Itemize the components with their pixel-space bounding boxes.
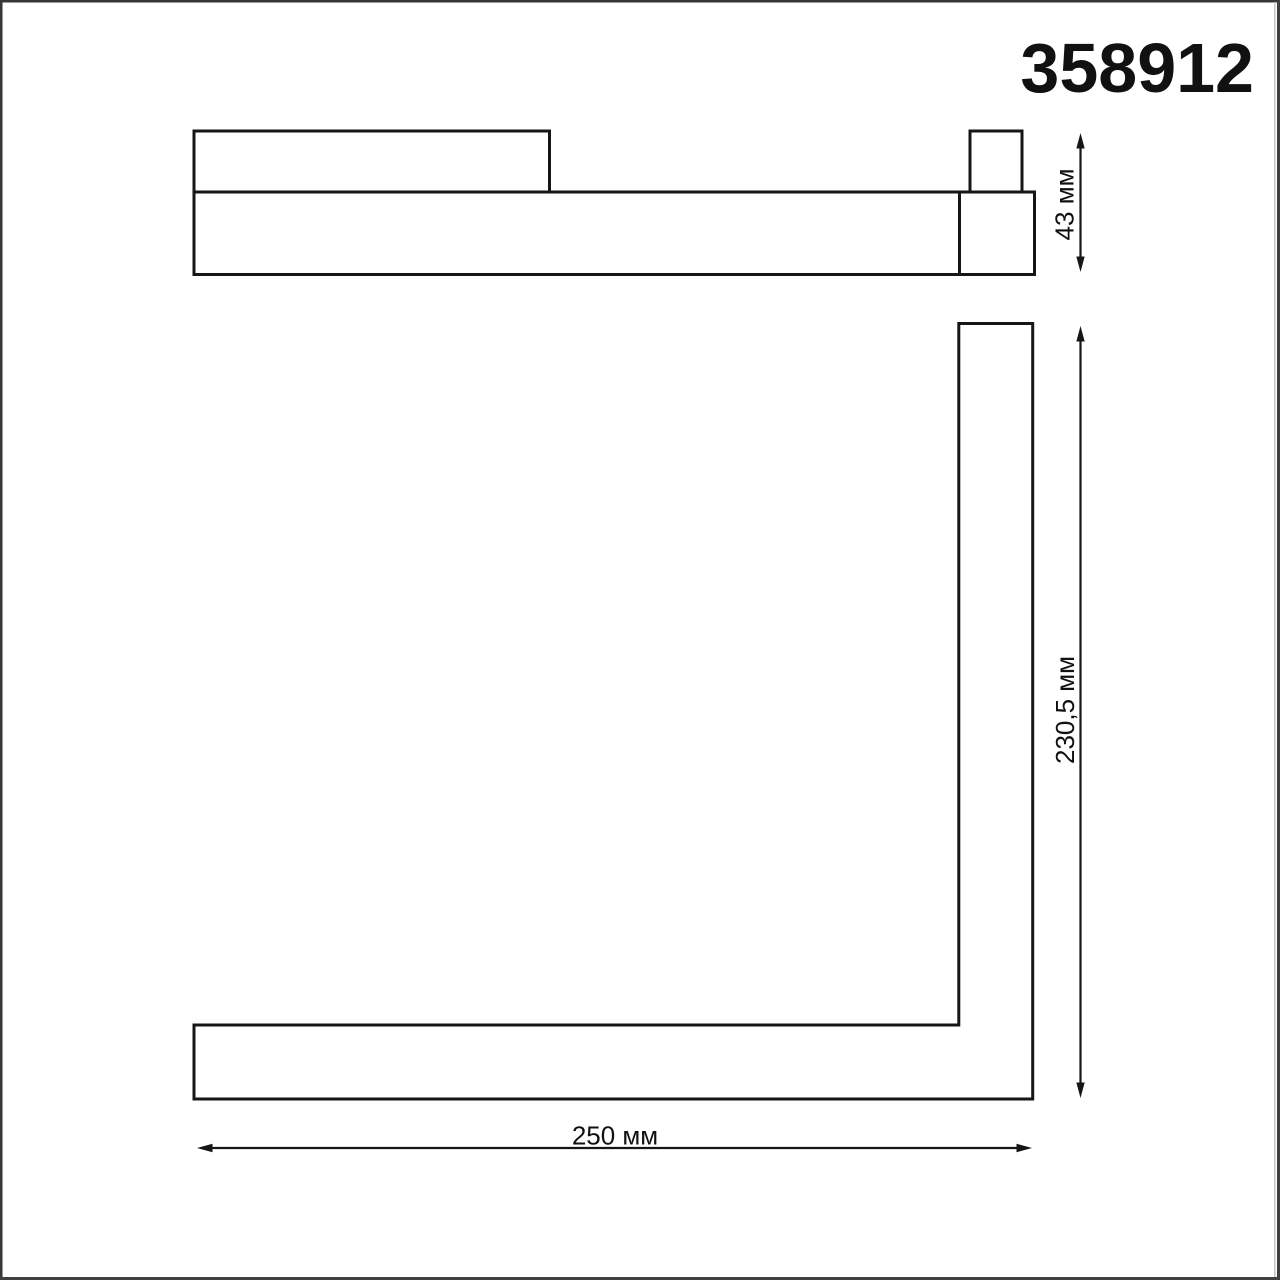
svg-text:230,5 мм: 230,5 мм: [1050, 656, 1080, 764]
svg-text:250 мм: 250 мм: [572, 1121, 658, 1151]
svg-text:358912: 358912: [1020, 29, 1254, 107]
svg-text:43 мм: 43 мм: [1050, 169, 1080, 241]
